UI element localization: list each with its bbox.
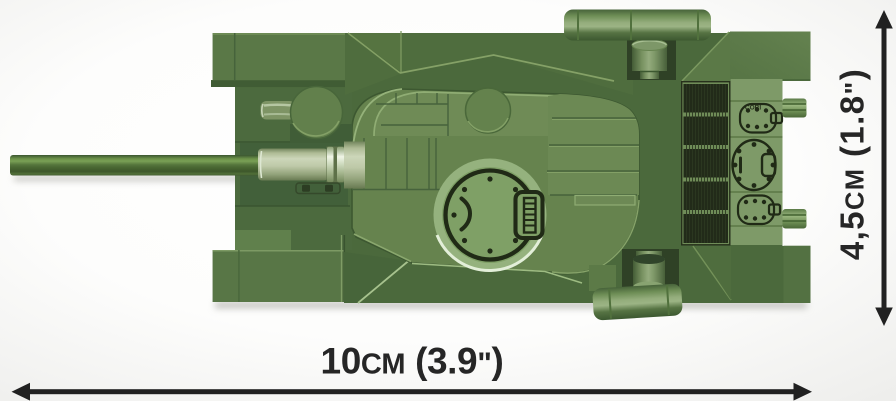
- svg-text:10CM (3.9"): 10CM (3.9"): [321, 341, 504, 382]
- svg-text:4,5CM (1.8"): 4,5CM (1.8"): [834, 68, 871, 260]
